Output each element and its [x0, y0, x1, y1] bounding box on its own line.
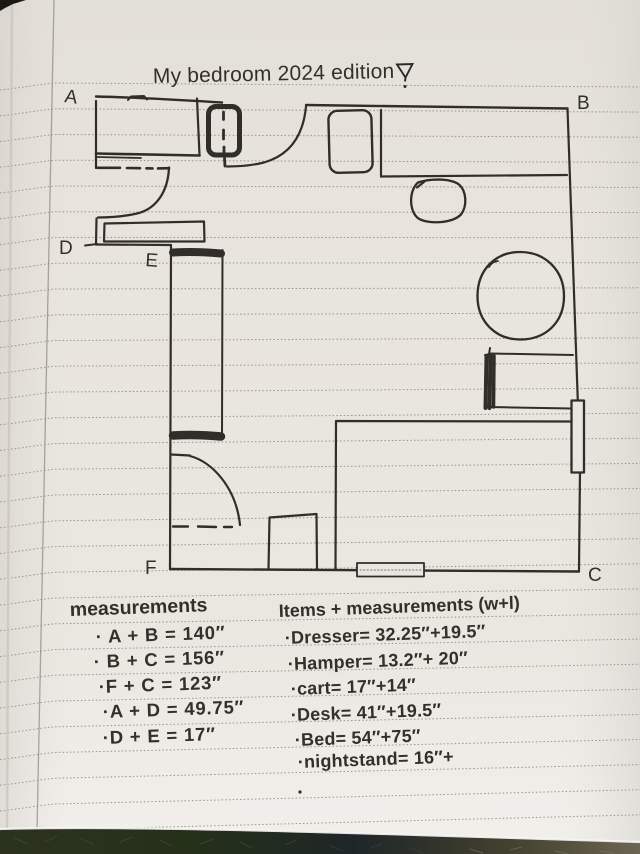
- svg-text:D: D: [59, 238, 73, 259]
- svg-text:E: E: [145, 250, 159, 272]
- svg-text:·F + C = 123″: ·F + C = 123″: [98, 672, 222, 697]
- svg-text:F: F: [145, 558, 157, 579]
- svg-text:B: B: [577, 93, 590, 114]
- svg-text:C: C: [588, 565, 602, 586]
- svg-text:·D + E = 17″: ·D + E = 17″: [102, 723, 216, 748]
